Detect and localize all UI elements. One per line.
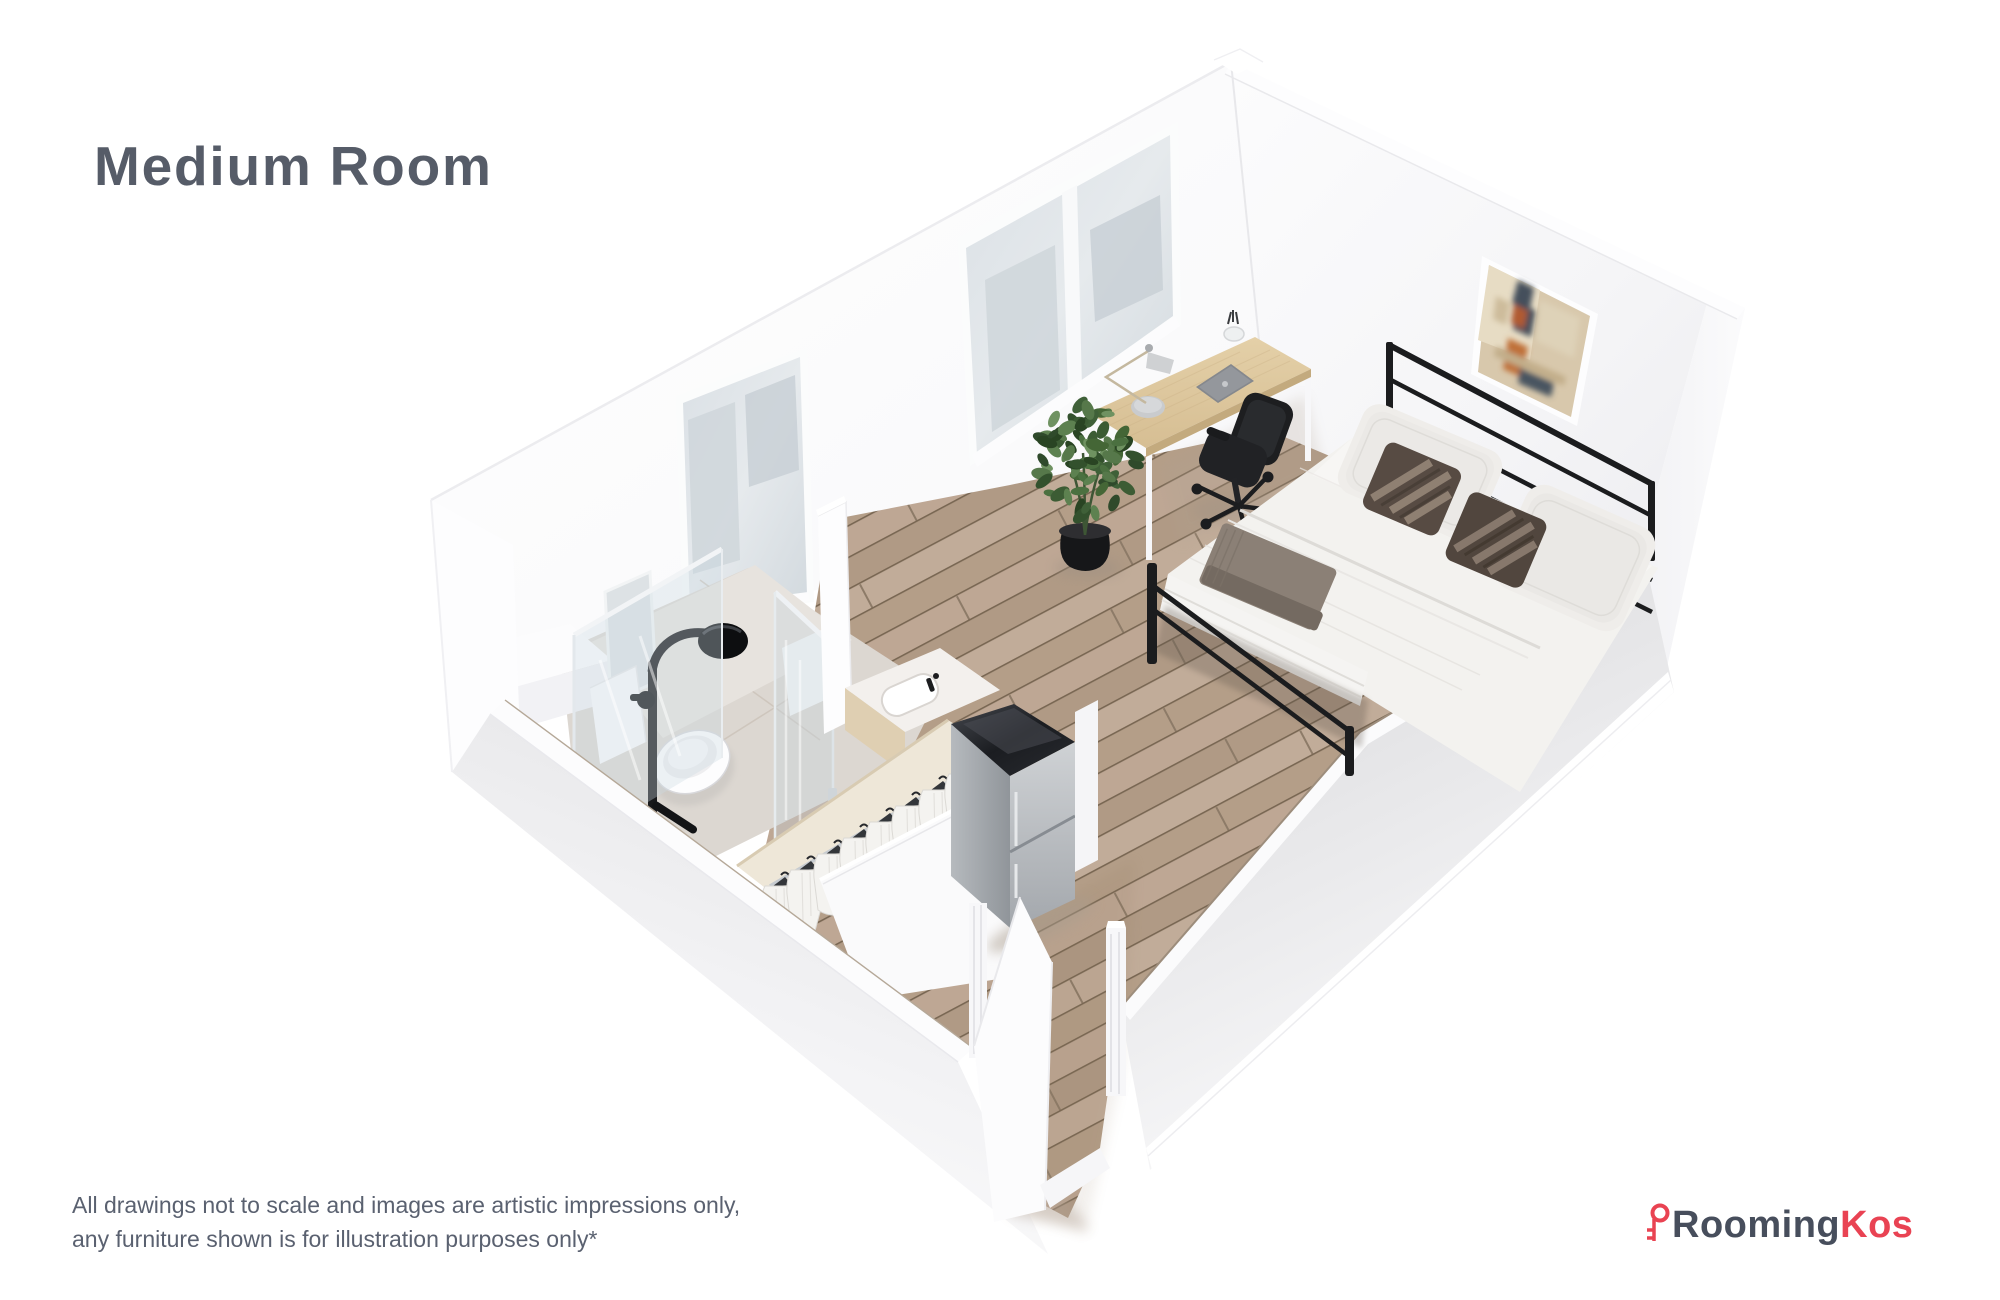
- svg-text:any furniture shown is for ill: any furniture shown is for illustration …: [72, 1226, 597, 1252]
- svg-text:All drawings not to scale and: All drawings not to scale and images are…: [72, 1192, 740, 1218]
- svg-text:RoomingKos: RoomingKos: [1672, 1204, 1913, 1246]
- svg-text:Medium Room: Medium Room: [94, 135, 493, 197]
